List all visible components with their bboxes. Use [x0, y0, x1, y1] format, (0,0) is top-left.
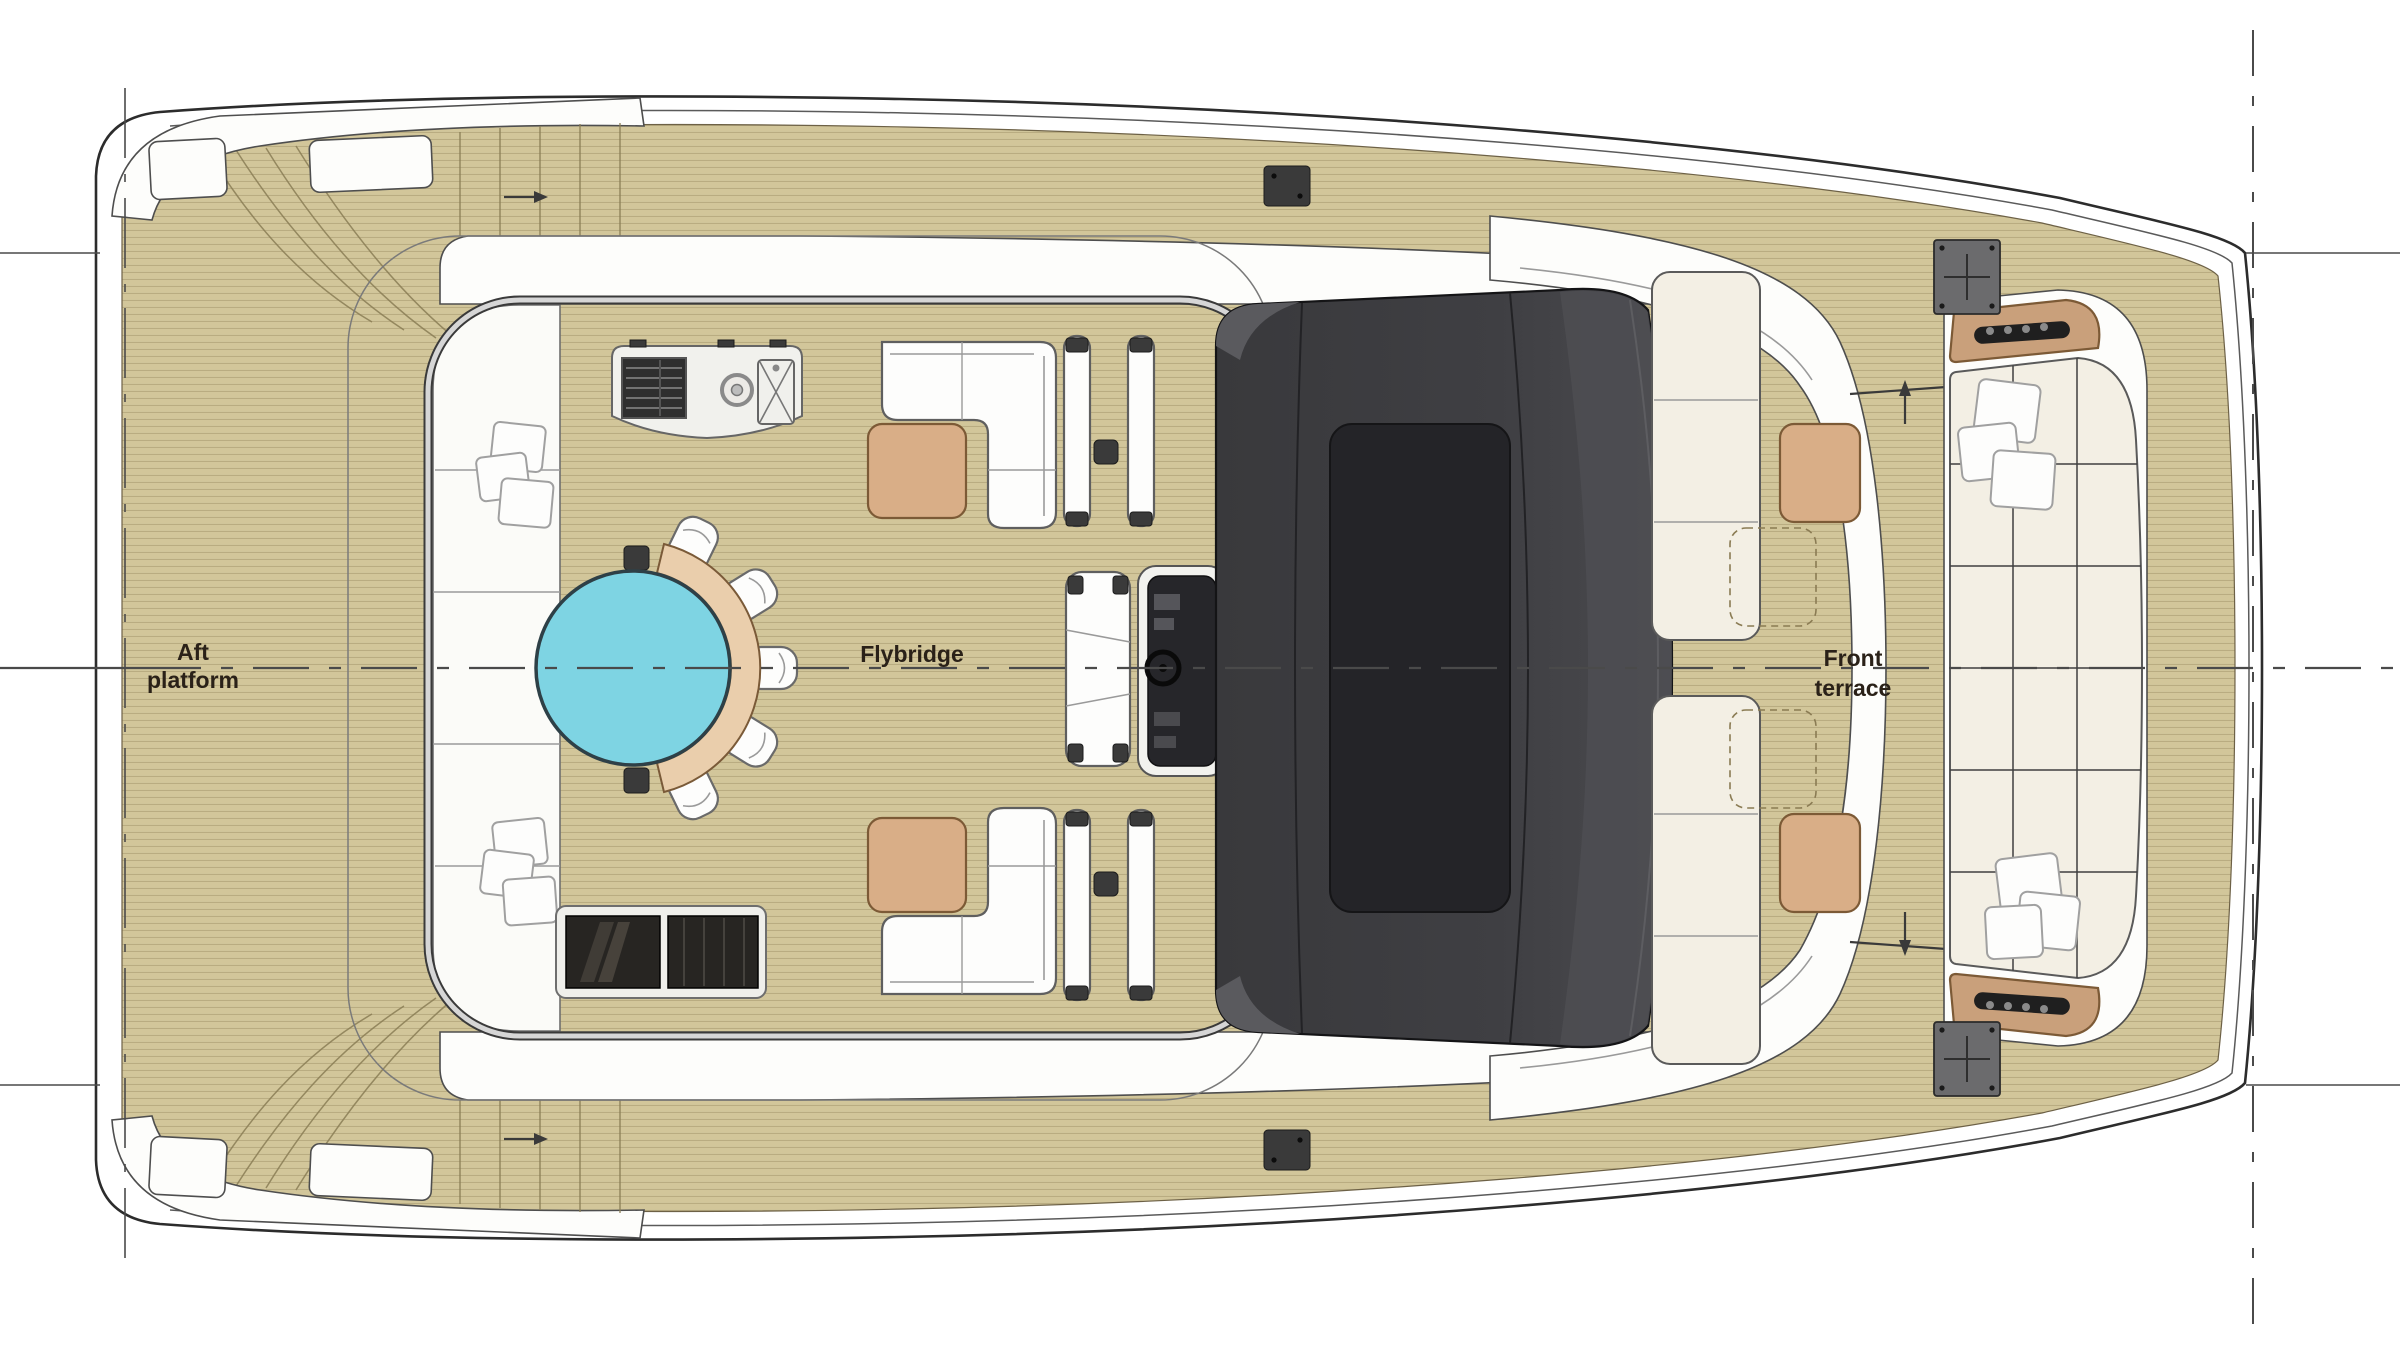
stern-step [149, 1136, 228, 1198]
sink-icon [758, 360, 794, 424]
yacht-deck-plan: Aft platform Flybridge Front terrace [0, 0, 2400, 1358]
terrace-table-bottom [1780, 814, 1860, 912]
glass-hatches [556, 906, 766, 998]
stern-step [309, 135, 433, 192]
wet-bar [612, 340, 802, 438]
side-table [1094, 872, 1118, 896]
stool [624, 768, 649, 793]
instrument-display [1154, 618, 1174, 630]
terrace-lounge-top [1652, 272, 1760, 640]
front-terrace-label-line1: Front [1824, 645, 1883, 671]
instrument-display [1154, 594, 1180, 610]
front-terrace-label-line2: terrace [1815, 675, 1892, 701]
grill-icon [622, 358, 686, 418]
lounge-top [868, 342, 1056, 528]
instrument-panel [1154, 736, 1176, 748]
hinge [770, 340, 786, 347]
stern-step [149, 138, 228, 200]
cleat-hatch [1264, 166, 1310, 206]
hinge [630, 340, 646, 347]
burner-icon [722, 375, 752, 405]
stern-step [309, 1143, 433, 1200]
deck-plan-page: Aft platform Flybridge Front terrace [0, 0, 2400, 1358]
cleat-hatch [1264, 1130, 1310, 1170]
coffee-table [868, 424, 966, 518]
helm-station [1066, 566, 1226, 776]
terrace-table-top [1780, 424, 1860, 522]
coffee-table [868, 818, 966, 912]
aft-platform-label-line1: Aft [177, 639, 209, 665]
hinge [718, 340, 734, 347]
stool [624, 546, 649, 570]
terrace-lounge-bottom [1652, 696, 1760, 1064]
side-table [1094, 440, 1118, 464]
lounge-bottom [868, 808, 1056, 994]
aft-platform-label-line2: platform [147, 667, 239, 693]
flybridge-label: Flybridge [860, 641, 964, 667]
instrument-panel [1154, 712, 1180, 726]
